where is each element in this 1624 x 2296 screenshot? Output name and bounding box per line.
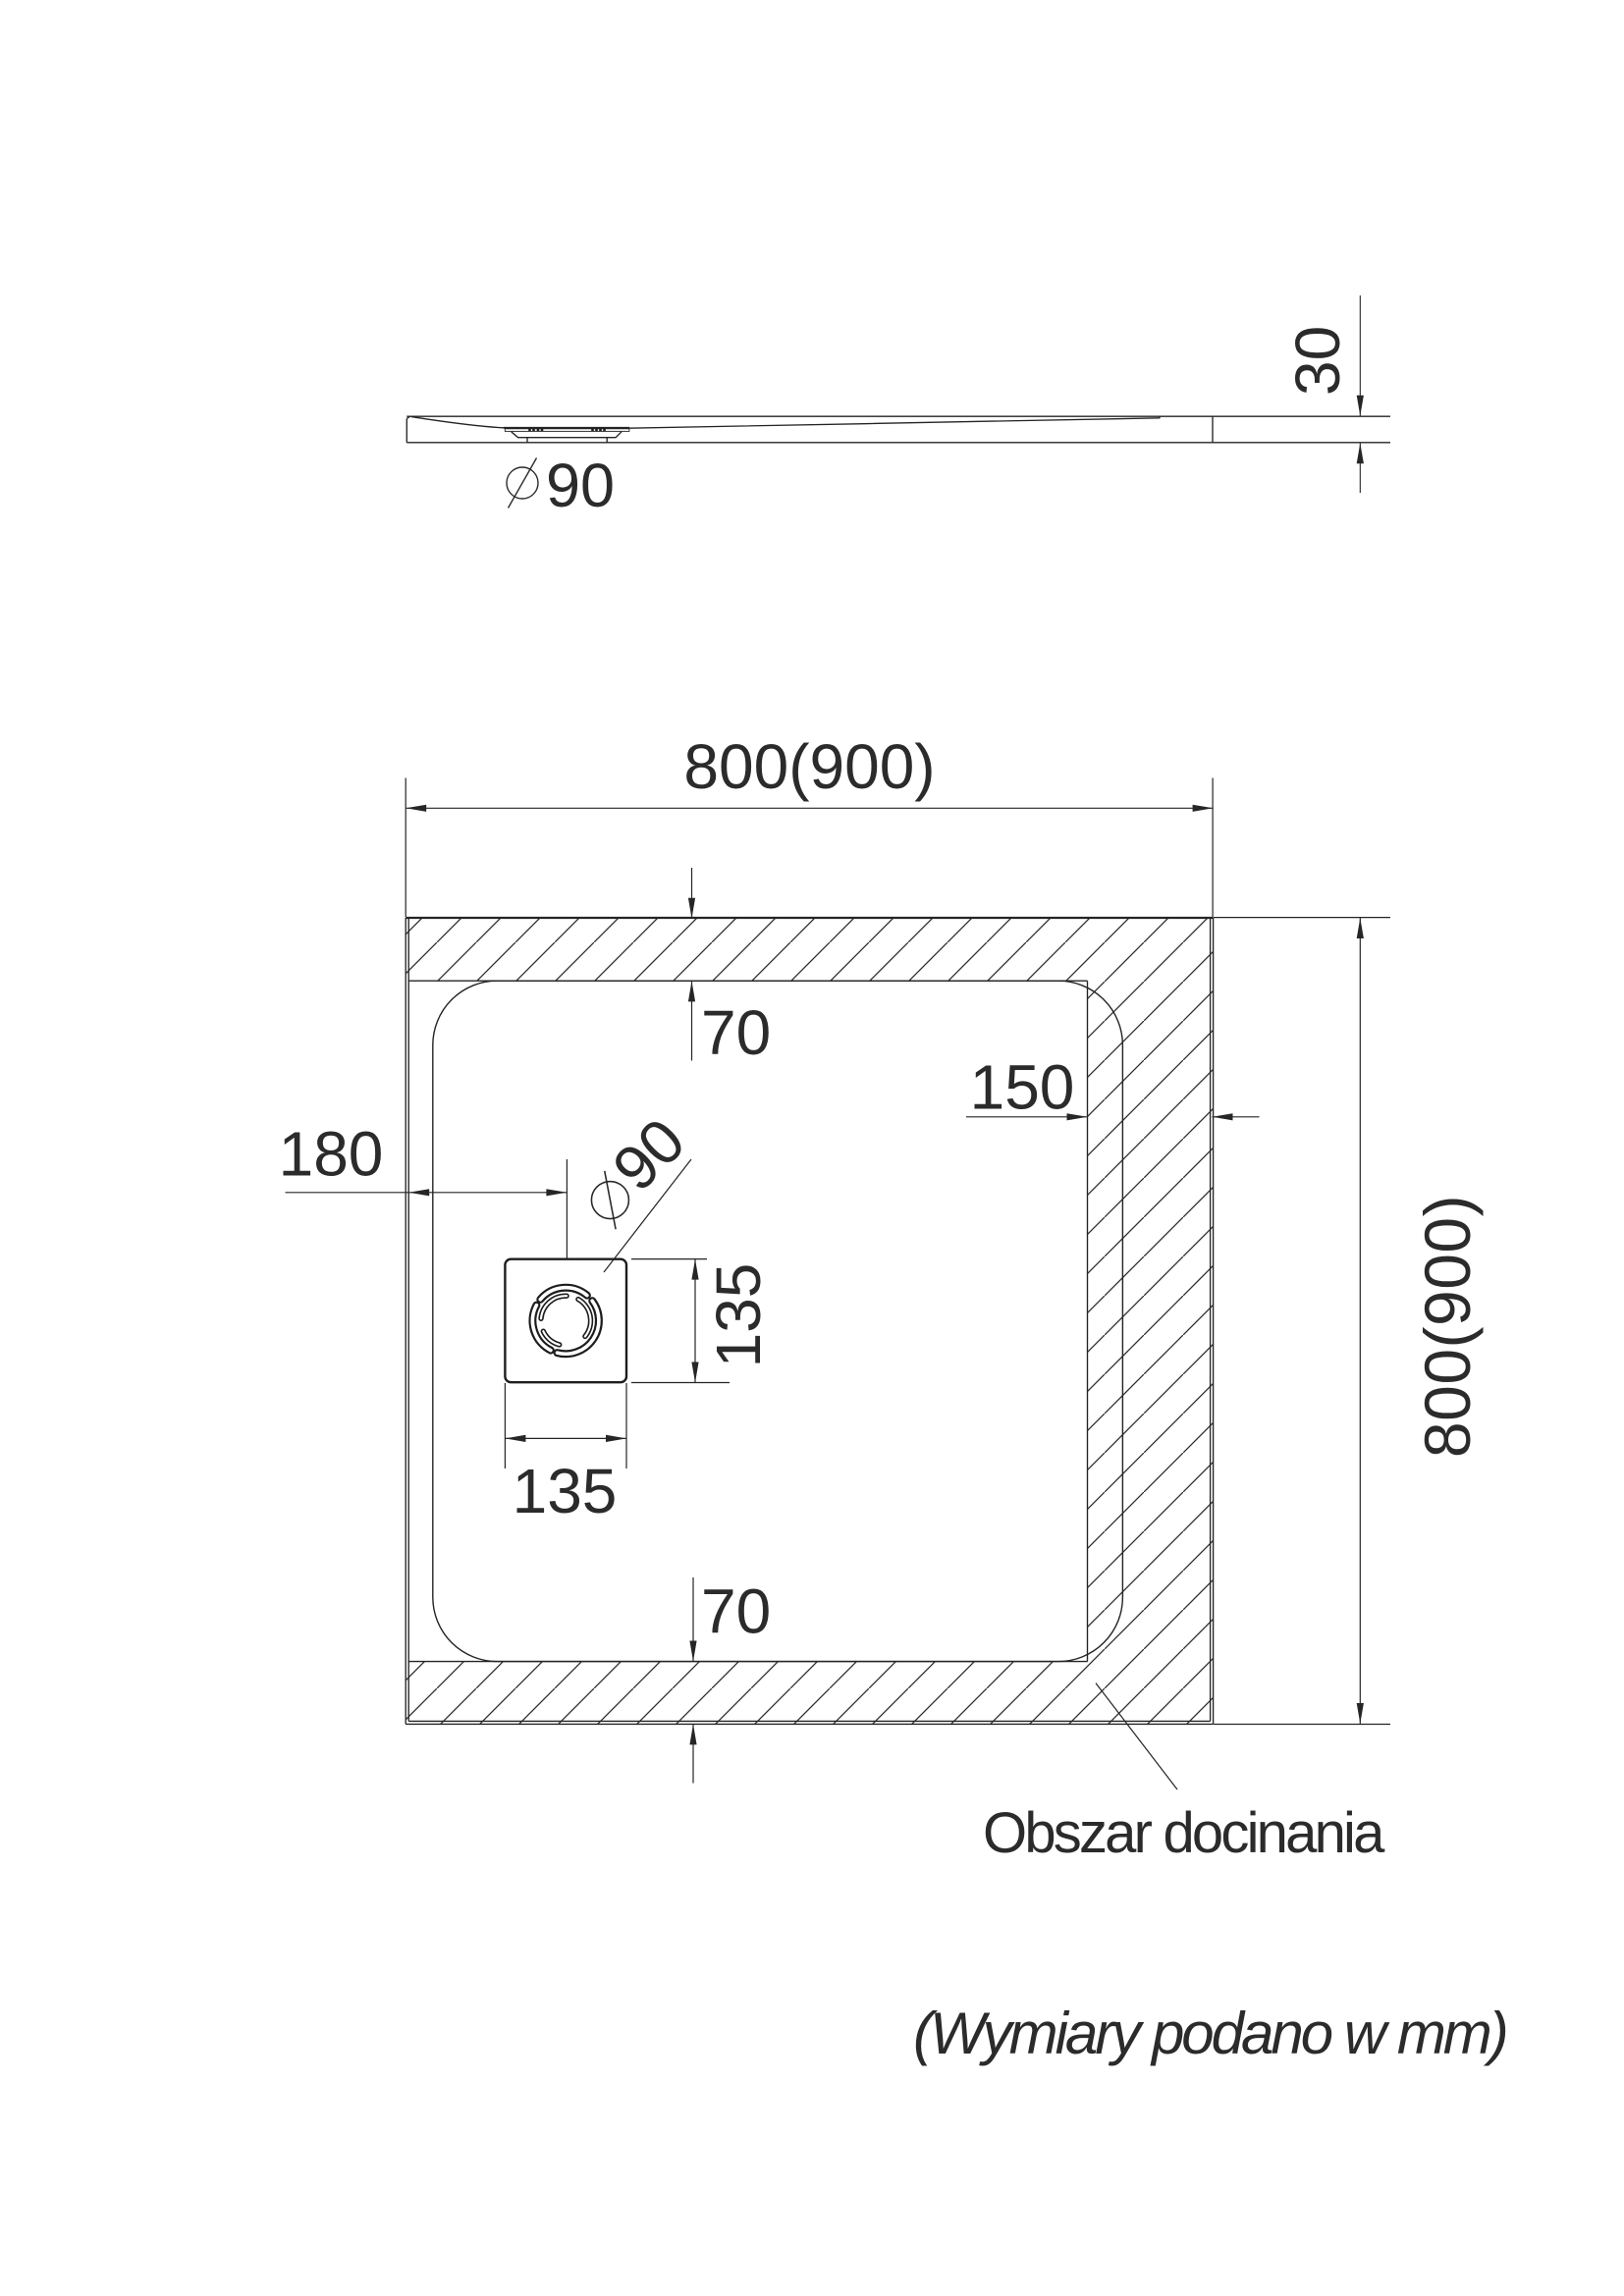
svg-text:90: 90 — [546, 452, 615, 520]
svg-text:800(900): 800(900) — [683, 731, 935, 802]
svg-text:70: 70 — [701, 997, 771, 1068]
svg-text:90: 90 — [599, 1105, 698, 1204]
svg-text:30: 30 — [1282, 326, 1353, 396]
svg-text:180: 180 — [279, 1118, 384, 1189]
svg-text:800(900): 800(900) — [1411, 1195, 1484, 1458]
svg-text:70: 70 — [701, 1576, 771, 1647]
svg-text:Obszar docinania: Obszar docinania — [983, 1801, 1385, 1865]
svg-text:135: 135 — [513, 1456, 618, 1526]
svg-text:135: 135 — [703, 1263, 774, 1368]
svg-text:(Wymiary podano w mm): (Wymiary podano w mm) — [913, 2001, 1506, 2066]
svg-text:150: 150 — [970, 1052, 1075, 1123]
